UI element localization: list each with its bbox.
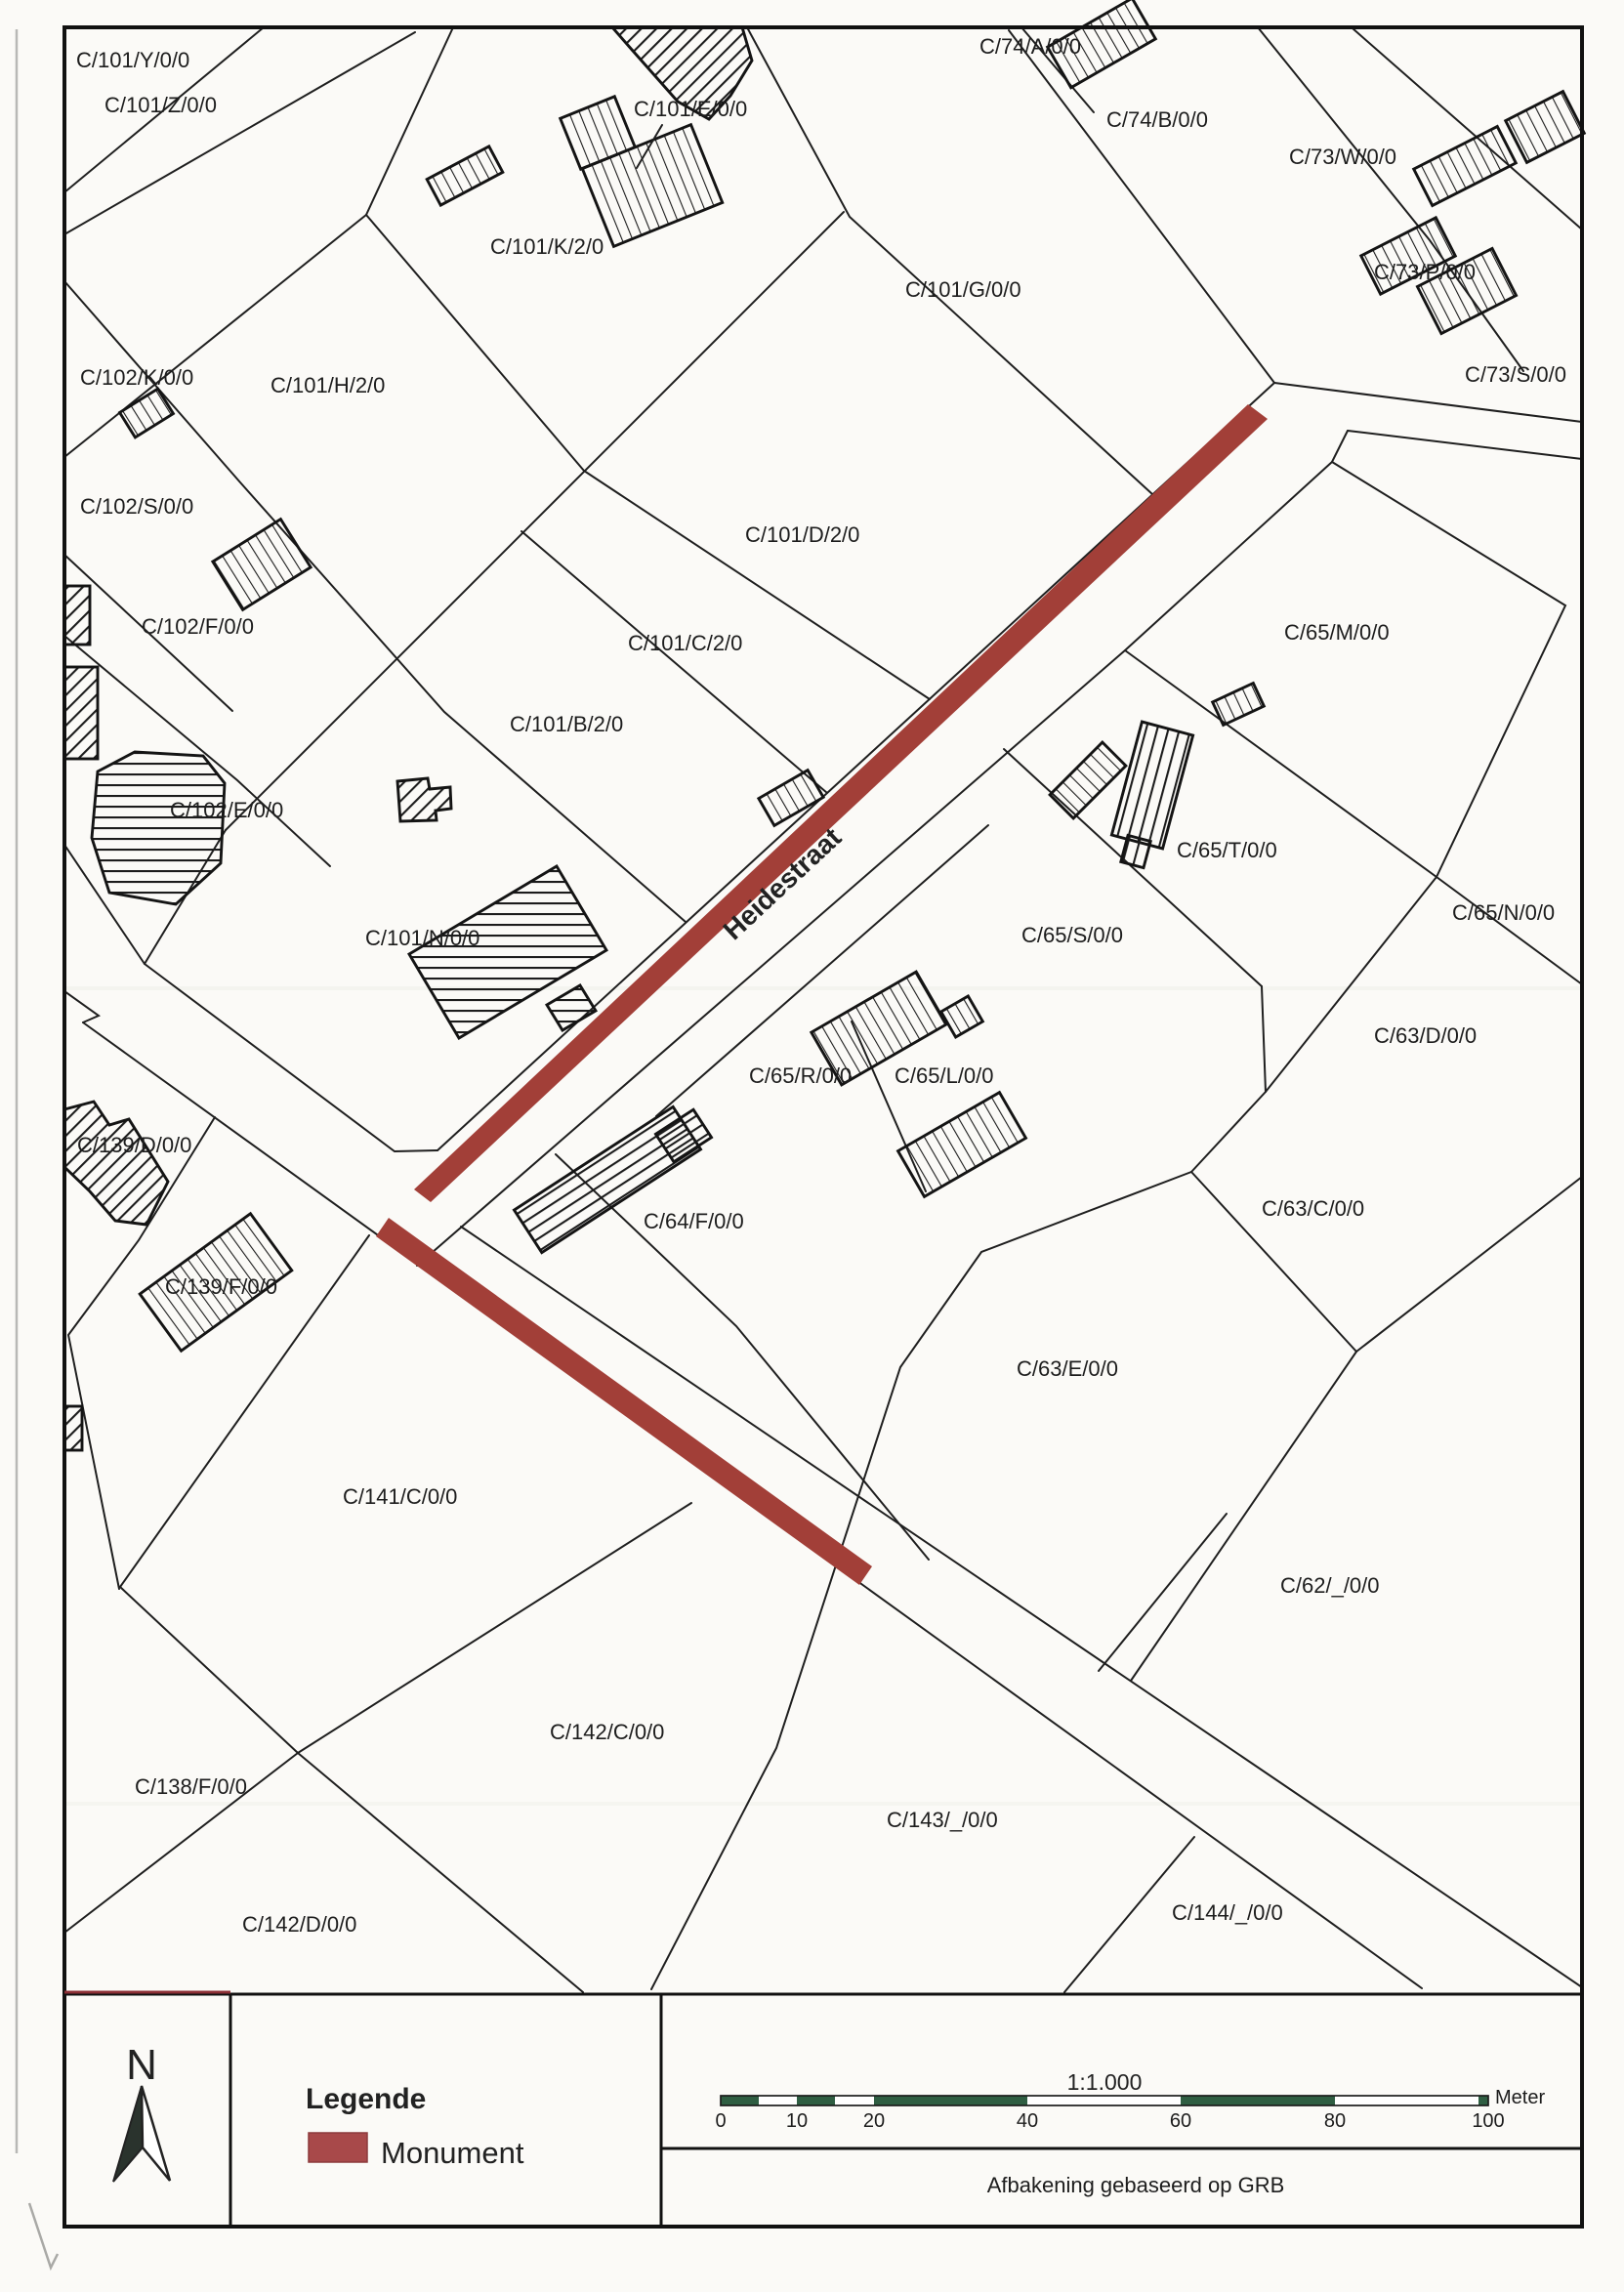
- svg-text:C/101/D/2/0: C/101/D/2/0: [745, 522, 859, 547]
- svg-text:C/101/K/2/0: C/101/K/2/0: [490, 234, 604, 259]
- svg-text:1:1.000: 1:1.000: [1067, 2069, 1143, 2095]
- svg-text:C/102/E/0/0: C/102/E/0/0: [170, 798, 283, 822]
- svg-text:C/102/K/0/0: C/102/K/0/0: [80, 365, 193, 390]
- svg-text:C/141/C/0/0: C/141/C/0/0: [343, 1484, 457, 1509]
- svg-text:C/65/N/0/0: C/65/N/0/0: [1452, 900, 1555, 925]
- svg-text:Legende: Legende: [306, 2083, 426, 2115]
- svg-text:N: N: [126, 2041, 157, 2089]
- svg-text:0: 0: [715, 2110, 726, 2132]
- svg-text:C/101/Z/0/0: C/101/Z/0/0: [104, 93, 217, 117]
- svg-text:C/102/S/0/0: C/102/S/0/0: [80, 494, 193, 519]
- svg-text:C/142/D/0/0: C/142/D/0/0: [242, 1912, 356, 1937]
- svg-text:C/62/_/0/0: C/62/_/0/0: [1280, 1573, 1380, 1598]
- svg-text:C/64/F/0/0: C/64/F/0/0: [644, 1209, 744, 1233]
- svg-text:Monument: Monument: [381, 2136, 524, 2170]
- svg-text:C/101/B/2/0: C/101/B/2/0: [510, 712, 623, 736]
- svg-text:C/65/M/0/0: C/65/M/0/0: [1284, 620, 1390, 645]
- svg-text:C/63/D/0/0: C/63/D/0/0: [1374, 1023, 1477, 1048]
- svg-text:C/143/_/0/0: C/143/_/0/0: [887, 1808, 998, 1832]
- svg-text:100: 100: [1472, 2110, 1504, 2132]
- svg-text:C/65/R/0/0: C/65/R/0/0: [749, 1063, 852, 1088]
- svg-text:C/63/C/0/0: C/63/C/0/0: [1262, 1196, 1364, 1221]
- svg-text:C/101/Y/0/0: C/101/Y/0/0: [76, 48, 189, 72]
- svg-text:Afbakening gebaseerd op GRB: Afbakening gebaseerd op GRB: [987, 2173, 1285, 2197]
- svg-text:20: 20: [863, 2110, 885, 2132]
- svg-text:C/101/E/0/0: C/101/E/0/0: [634, 97, 747, 121]
- svg-text:C/73/W/0/0: C/73/W/0/0: [1289, 145, 1396, 169]
- svg-text:C/101/C/2/0: C/101/C/2/0: [628, 631, 742, 655]
- svg-text:C/65/L/0/0: C/65/L/0/0: [895, 1063, 994, 1088]
- svg-text:60: 60: [1170, 2110, 1191, 2132]
- svg-text:C/101/G/0/0: C/101/G/0/0: [905, 277, 1021, 302]
- svg-text:C/74/B/0/0: C/74/B/0/0: [1106, 107, 1208, 132]
- svg-text:C/142/C/0/0: C/142/C/0/0: [550, 1720, 664, 1744]
- svg-text:C/139/D/0/0: C/139/D/0/0: [77, 1133, 191, 1157]
- svg-text:10: 10: [786, 2110, 808, 2132]
- svg-text:C/65/T/0/0: C/65/T/0/0: [1177, 838, 1277, 862]
- svg-text:C/65/S/0/0: C/65/S/0/0: [1021, 923, 1123, 947]
- svg-text:C/101/H/2/0: C/101/H/2/0: [271, 373, 385, 397]
- svg-text:Meter: Meter: [1495, 2087, 1545, 2108]
- svg-text:C/144/_/0/0: C/144/_/0/0: [1172, 1900, 1283, 1925]
- svg-text:C/73/P/0/0: C/73/P/0/0: [1374, 260, 1476, 284]
- svg-text:C/138/F/0/0: C/138/F/0/0: [135, 1774, 247, 1799]
- svg-text:40: 40: [1017, 2110, 1038, 2132]
- svg-text:C/63/E/0/0: C/63/E/0/0: [1017, 1356, 1118, 1381]
- svg-text:C/139/F/0/0: C/139/F/0/0: [165, 1274, 277, 1299]
- svg-text:C/102/F/0/0: C/102/F/0/0: [142, 614, 254, 639]
- svg-text:80: 80: [1324, 2110, 1346, 2132]
- svg-text:C/101/N/0/0: C/101/N/0/0: [365, 926, 479, 950]
- svg-text:C/74/A/0/0: C/74/A/0/0: [979, 34, 1081, 59]
- svg-text:C/73/S/0/0: C/73/S/0/0: [1465, 362, 1566, 387]
